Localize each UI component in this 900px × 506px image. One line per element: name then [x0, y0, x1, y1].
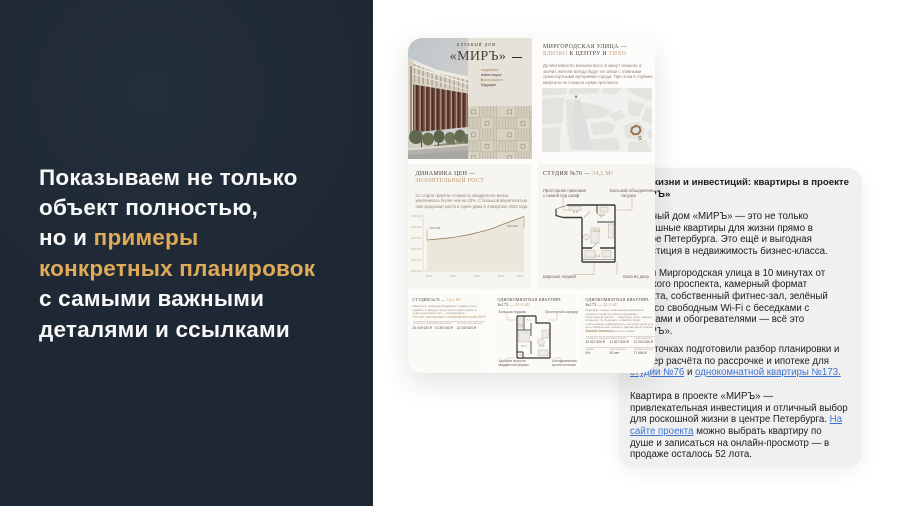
svg-text:3.3: 3.3: [595, 254, 600, 258]
svg-text:15.4: 15.4: [521, 344, 527, 348]
svg-text:2022: 2022: [498, 274, 505, 278]
svg-text:2019: 2019: [426, 274, 433, 278]
svg-text:2021: 2021: [474, 274, 481, 278]
svg-text:21.1: 21.1: [593, 229, 600, 233]
svg-text:460 000: 460 000: [411, 236, 422, 240]
svg-text:600 000: 600 000: [411, 214, 422, 218]
svg-text:250 000: 250 000: [411, 269, 422, 273]
svg-text:293 628: 293 628: [430, 226, 441, 230]
svg-text:390 000: 390 000: [411, 247, 422, 251]
svg-text:3.6: 3.6: [519, 353, 523, 357]
svg-text:530 000: 530 000: [411, 225, 422, 229]
svg-text:2020: 2020: [450, 274, 457, 278]
svg-text:4.5: 4.5: [600, 213, 605, 217]
svg-text:5.3: 5.3: [519, 323, 523, 327]
svg-text:6.6: 6.6: [573, 210, 578, 214]
svg-text:17.6: 17.6: [539, 344, 545, 348]
svg-text:593 608: 593 608: [507, 224, 518, 228]
svg-text:320 000: 320 000: [411, 258, 422, 262]
svg-text:7.4: 7.4: [527, 318, 531, 322]
svg-text:2023: 2023: [517, 274, 524, 278]
